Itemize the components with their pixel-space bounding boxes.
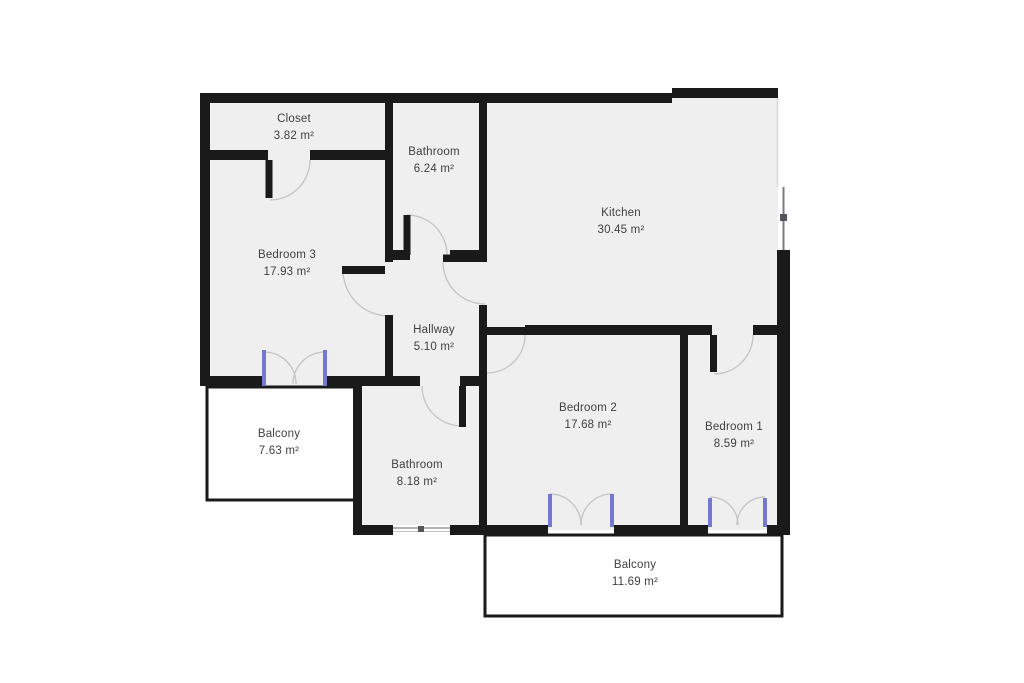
bedroom-3-french-leaf-left [262,350,266,386]
wall-kitchen-bottom-a [479,325,487,335]
wall-closet-a [210,150,268,160]
wall-mid-left-v-b [385,315,393,386]
wall-right [777,250,790,535]
balcony-bottom [485,535,782,616]
bathroom-window-handle [418,526,424,532]
wall-bottom-d [614,525,708,535]
bathroom-top-door-leaf [404,215,411,255]
wall-mid-right-v-a [479,97,487,262]
wall-bedroom3-bottom-b [327,376,420,386]
balcony-left [207,387,355,500]
wall-left [200,93,210,386]
bedroom-2-door-leaf [487,327,525,335]
wall-bedroom-divider [680,325,688,535]
bedroom-2-french-leaf-right [610,494,614,527]
bathroom-bottom-door-leaf [459,386,466,427]
room-hallway [388,250,485,386]
bedroom-2-french-leaf-left [548,494,552,527]
room-bedroom-2 [483,325,685,530]
wall-top-right [672,88,778,98]
wall-balcony-bathroom-divider [353,376,362,535]
bedroom-1-french-leaf-right [763,498,767,527]
closet-door-leaf [266,160,273,198]
wall-top-left [200,93,672,103]
wall-bedroom3-bottom-c [460,376,487,386]
bedroom-3-french-leaf-right [323,350,327,386]
wall-mid-right-v-b [479,305,487,535]
wall-bedroom3-bottom-a [200,376,262,386]
bedroom-1-door-leaf [710,335,717,372]
wall-kitchen-bottom-c [753,325,778,335]
wall-closet-b [310,150,393,160]
room-kitchen [483,97,778,335]
floor-plan-drawing [0,0,1024,683]
wall-bottom-c [479,525,548,535]
floor-plan-canvas: Closet 3.82 m² Bathroom 6.24 m² Kitchen … [0,0,1024,683]
entry-door-handle [780,214,787,221]
bedroom-1-french-leaf-left [708,498,712,527]
room-bathroom-top [388,97,485,260]
wall-mid-left-v-a [385,97,393,262]
kitchen-door-leaf [443,255,485,263]
bedroom-3-door-leaf [342,266,385,274]
wall-bottom-b [450,525,483,535]
wall-bottom-e [767,525,790,535]
